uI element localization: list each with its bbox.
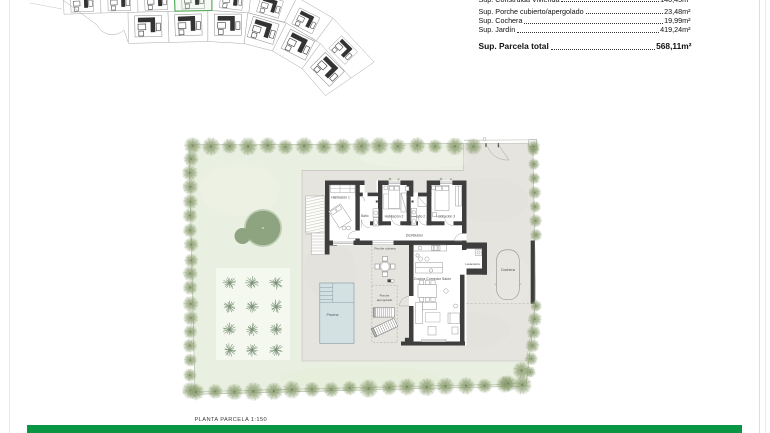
svg-text:Porche cubierto: Porche cubierto xyxy=(374,247,396,251)
svg-text:Porche: Porche xyxy=(380,293,390,297)
svg-text:Distribuidor: Distribuidor xyxy=(406,234,424,238)
svg-text:apergolado: apergolado xyxy=(377,298,393,302)
svg-text:PLANTA PARCELA 1:150: PLANTA PARCELA 1:150 xyxy=(195,417,268,423)
svg-text:Lavandería: Lavandería xyxy=(465,262,480,266)
svg-text:Piscina: Piscina xyxy=(327,313,340,317)
svg-text:Cochera: Cochera xyxy=(501,268,516,272)
svg-text:Habitación 1: Habitación 1 xyxy=(331,195,350,199)
svg-text:Habitación 3: Habitación 3 xyxy=(436,215,455,219)
svg-text:Habitación 2: Habitación 2 xyxy=(385,215,404,219)
svg-text:Baño: Baño xyxy=(361,214,369,218)
